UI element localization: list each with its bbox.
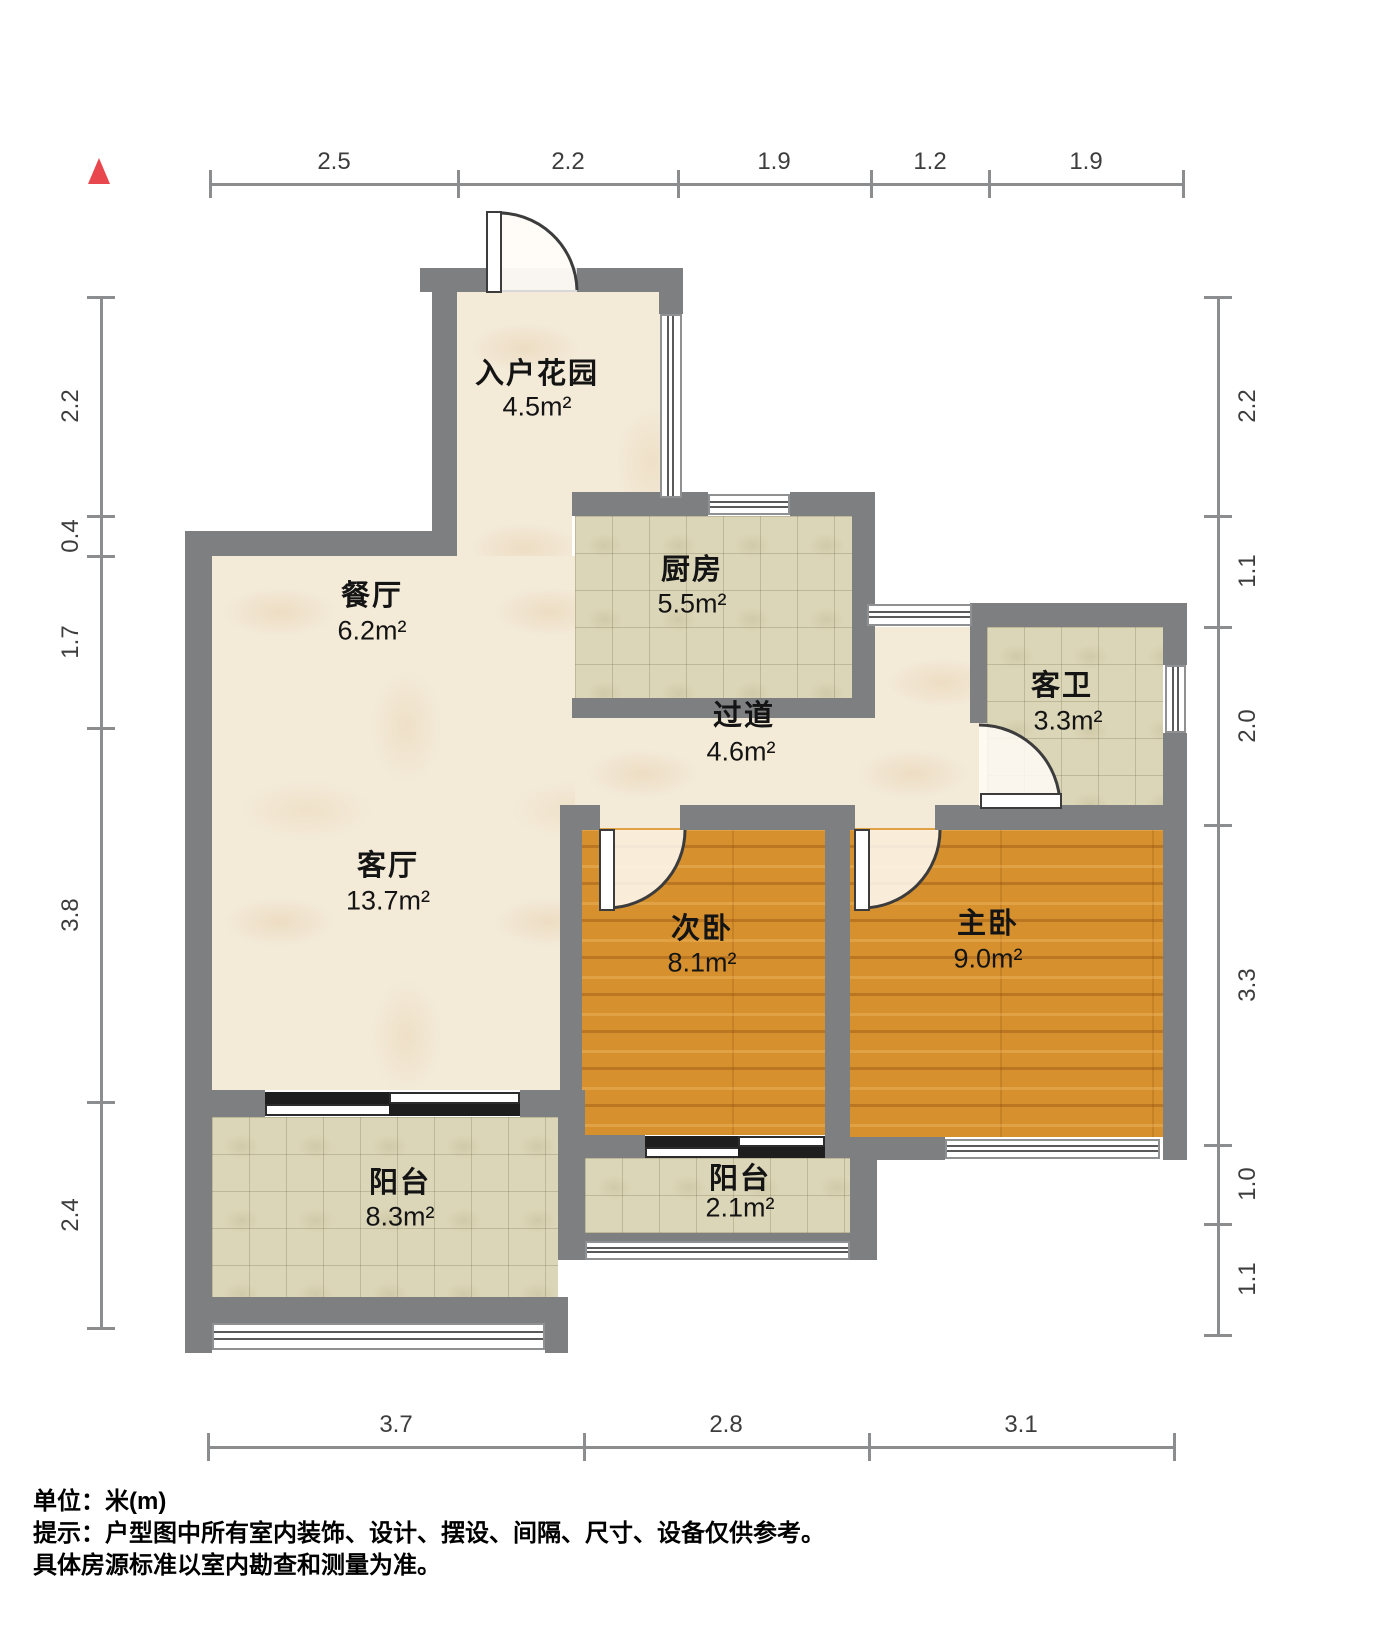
room-area-living: 13.7m² xyxy=(346,886,430,917)
wall xyxy=(212,1090,265,1117)
dim-label-top: 1.9 xyxy=(1069,148,1102,176)
wall xyxy=(825,805,850,1137)
room-name-dining: 餐厅 xyxy=(341,572,403,614)
dim-tick-right xyxy=(1204,515,1232,518)
dim-tick-left xyxy=(87,296,115,299)
wall xyxy=(432,268,457,556)
dim-label-left: 2.4 xyxy=(57,1198,85,1231)
dim-label-bottom: 2.8 xyxy=(709,1411,742,1439)
balcony-small-railing xyxy=(585,1241,850,1260)
floorplan-canvas: 入户花园4.5m²餐厅6.2m²厨房5.5m²客卫3.3m²过道4.6m²客厅1… xyxy=(0,0,1374,1636)
room-area-balcony-small: 2.1m² xyxy=(705,1193,774,1224)
dim-tick-left xyxy=(87,727,115,730)
wall xyxy=(970,603,987,723)
room-area-dining: 6.2m² xyxy=(337,616,406,647)
dim-tick-right xyxy=(1204,1223,1232,1226)
dim-label-left: 3.8 xyxy=(57,898,85,931)
room-area-guest-bath: 3.3m² xyxy=(1033,706,1102,737)
living-balcony-slider xyxy=(389,1104,520,1116)
room-name-living: 客厅 xyxy=(357,842,419,884)
wall xyxy=(659,268,683,314)
living-balcony-slider xyxy=(389,1092,520,1104)
dim-label-bottom: 3.1 xyxy=(1004,1411,1037,1439)
room-area-entry-garden: 4.5m² xyxy=(502,392,571,423)
wall xyxy=(185,531,212,1331)
dim-tick-bottom xyxy=(1173,1433,1176,1461)
footnotes: 单位：米(m) 提示：户型图中所有室内装饰、设计、摆设、间隔、尺寸、设备仅供参考… xyxy=(33,1486,825,1582)
living-balcony-slider xyxy=(265,1092,391,1104)
room-area-hallway: 4.6m² xyxy=(706,737,775,768)
wall xyxy=(1163,733,1187,1160)
dim-tick-right xyxy=(1204,1144,1232,1147)
living-balcony-slider xyxy=(265,1104,391,1116)
room-area-balcony-large: 8.3m² xyxy=(365,1202,434,1233)
dim-label-left: 0.4 xyxy=(57,519,85,552)
disclaimer-line-1: 提示：户型图中所有室内装饰、设计、摆设、间隔、尺寸、设备仅供参考。 xyxy=(33,1518,825,1550)
room-area-kitchen: 5.5m² xyxy=(657,589,726,620)
wall xyxy=(185,531,457,556)
dim-label-top: 1.9 xyxy=(757,148,790,176)
dim-line-top xyxy=(210,183,1183,186)
room-name-hallway: 过道 xyxy=(713,692,775,734)
dim-tick-left xyxy=(87,1327,115,1330)
wall xyxy=(935,805,1187,830)
kitchen-north-window xyxy=(708,494,790,515)
wall xyxy=(850,1160,877,1260)
room-name-balcony-small: 阳台 xyxy=(709,1155,771,1197)
dim-label-right: 3.3 xyxy=(1234,968,1262,1001)
dim-label-left: 1.7 xyxy=(57,625,85,658)
dim-label-top: 2.2 xyxy=(551,148,584,176)
dim-tick-top xyxy=(457,170,460,198)
bedroom2-balcony-slider xyxy=(645,1136,740,1147)
dim-label-bottom: 3.7 xyxy=(379,1411,412,1439)
entry-door-sill xyxy=(486,268,577,292)
dim-tick-top xyxy=(1182,170,1185,198)
dim-label-top: 2.5 xyxy=(317,148,350,176)
dim-label-right: 1.1 xyxy=(1234,1262,1262,1295)
dim-tick-left xyxy=(87,515,115,518)
wall xyxy=(572,492,708,516)
wall xyxy=(520,1090,560,1117)
dim-tick-top xyxy=(870,170,873,198)
master-south-window xyxy=(945,1139,1160,1159)
disclaimer-line-2: 具体房源标准以室内勘查和测量为准。 xyxy=(33,1550,825,1582)
dim-tick-top xyxy=(677,170,680,198)
room-name-guest-bath: 客卫 xyxy=(1031,662,1093,704)
dim-label-left: 2.2 xyxy=(57,389,85,422)
room-area-master: 9.0m² xyxy=(953,944,1022,975)
dim-line-bottom xyxy=(208,1446,1174,1449)
wall xyxy=(185,1297,568,1323)
dim-tick-bottom xyxy=(207,1433,210,1461)
room-area-bedroom2: 8.1m² xyxy=(667,948,736,979)
dim-label-right: 1.1 xyxy=(1234,554,1262,587)
floor-bedroom2-door-opening xyxy=(600,805,680,830)
floor-master xyxy=(850,828,1163,1137)
floor-bedroom2 xyxy=(582,828,825,1135)
dim-tick-left xyxy=(87,555,115,558)
dim-tick-top xyxy=(209,170,212,198)
room-name-entry-garden: 入户花园 xyxy=(475,350,599,392)
floor-master-door-opening xyxy=(855,805,935,830)
wall xyxy=(825,1135,850,1158)
dim-tick-right xyxy=(1204,1334,1232,1337)
wall xyxy=(1163,603,1187,665)
hallway-north-window xyxy=(867,604,972,626)
wall xyxy=(558,1090,585,1260)
floor-hallway-upper xyxy=(875,627,970,718)
dim-label-right: 1.0 xyxy=(1234,1167,1262,1200)
dim-line-left xyxy=(100,297,103,1328)
floor-bath-door-opening xyxy=(970,718,987,806)
dim-label-top: 1.2 xyxy=(913,148,946,176)
dim-tick-left xyxy=(87,1101,115,1104)
balcony-large-railing xyxy=(212,1323,545,1350)
wall xyxy=(582,1135,645,1158)
guest-bath-east-window xyxy=(1165,665,1186,733)
room-name-master: 主卧 xyxy=(957,900,1019,942)
dim-tick-right xyxy=(1204,296,1232,299)
unit-note: 单位：米(m) xyxy=(33,1486,825,1518)
wall xyxy=(850,1137,945,1160)
dim-line-right xyxy=(1217,297,1220,1335)
north-arrow-icon xyxy=(88,158,110,184)
dim-tick-bottom xyxy=(583,1433,586,1461)
wall xyxy=(545,1323,568,1353)
dim-label-right: 2.0 xyxy=(1234,709,1262,742)
wall xyxy=(972,603,1187,627)
dim-tick-right xyxy=(1204,626,1232,629)
bedroom2-balcony-slider xyxy=(738,1136,825,1147)
dim-tick-top xyxy=(988,170,991,198)
wall xyxy=(185,1323,212,1353)
entry-garden-east-window xyxy=(660,314,682,498)
floor-garden-dining-link xyxy=(457,492,572,556)
dim-label-right: 2.2 xyxy=(1234,389,1262,422)
dim-tick-bottom xyxy=(868,1433,871,1461)
room-name-kitchen: 厨房 xyxy=(661,546,723,588)
room-name-bedroom2: 次卧 xyxy=(671,905,733,947)
room-name-balcony-large: 阳台 xyxy=(369,1159,431,1201)
dim-tick-right xyxy=(1204,824,1232,827)
